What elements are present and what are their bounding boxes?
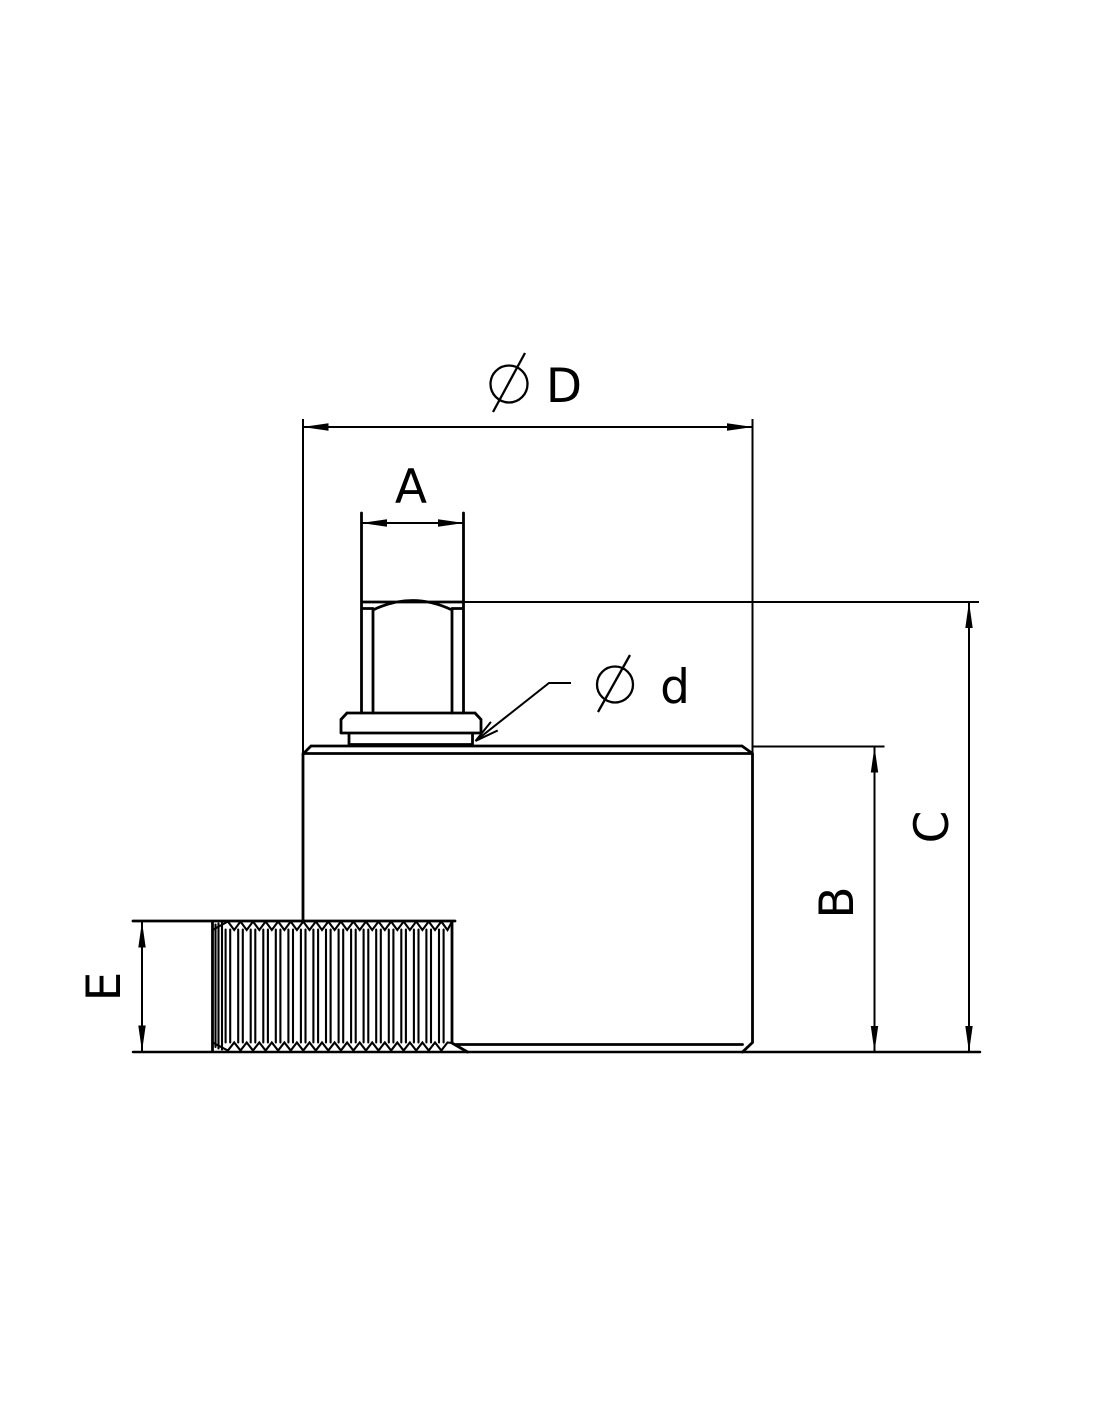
leader-line [476, 683, 572, 741]
knurl-teeth [216, 923, 444, 1050]
dimension-body-height: B [753, 747, 885, 1052]
connector-stem-outline [362, 513, 464, 713]
diameter-symbol [597, 655, 633, 712]
body-outline [303, 746, 753, 1052]
part-outline [133, 513, 980, 1052]
dimension-label-B: B [810, 886, 865, 918]
diameter-symbol [491, 353, 528, 412]
dimension-overall-height: C [464, 602, 980, 1052]
dimension-label-C: C [905, 811, 960, 844]
dimension-label-E: E [77, 972, 132, 1002]
knurl-bottom-zigzag [213, 1043, 453, 1051]
mounting-flange-outline [341, 713, 481, 745]
dimension-label-D: D [546, 359, 582, 414]
knurl-top-zigzag [213, 922, 453, 931]
drawing-canvas: D A d B C E [0, 0, 1100, 1422]
dimension-label-A: A [395, 460, 427, 515]
dimension-collar-diameter: d [476, 655, 690, 741]
engineering-drawing: D A d B C E [0, 0, 1100, 1422]
knurled-section [133, 921, 468, 1052]
dimension-knurl-height: E [77, 922, 142, 1051]
dimension-connector-width: A [362, 460, 464, 523]
dimension-label-d: d [660, 660, 690, 715]
